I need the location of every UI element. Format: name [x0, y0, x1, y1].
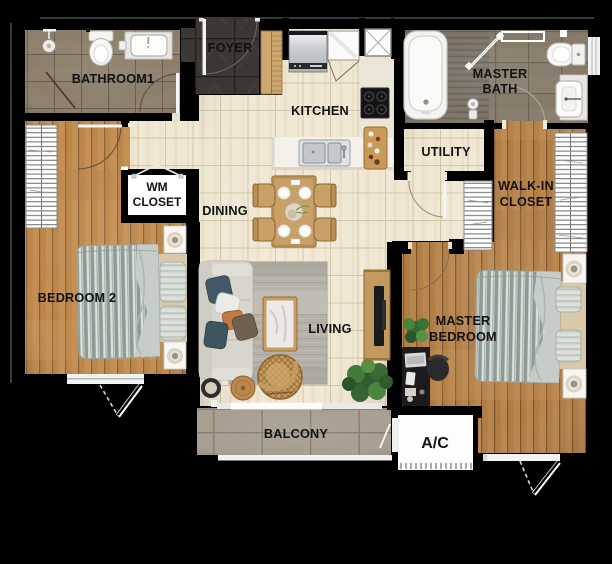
- svg-text:FOYER: FOYER: [208, 41, 253, 55]
- svg-text:BATH: BATH: [482, 82, 517, 96]
- svg-text:A/C: A/C: [421, 435, 449, 452]
- svg-text:DINING: DINING: [202, 204, 248, 218]
- svg-text:BALCONY: BALCONY: [264, 427, 328, 441]
- svg-text:MASTER: MASTER: [473, 67, 528, 81]
- svg-text:BATHROOM1: BATHROOM1: [72, 72, 155, 86]
- svg-text:WM: WM: [146, 180, 167, 194]
- svg-text:WALK-IN: WALK-IN: [498, 179, 554, 193]
- svg-text:LIVING: LIVING: [308, 322, 352, 336]
- svg-text:BEDROOM: BEDROOM: [429, 330, 497, 344]
- svg-text:CLOSET: CLOSET: [500, 195, 553, 209]
- svg-text:MASTER: MASTER: [436, 314, 491, 328]
- svg-text:BEDROOM 2: BEDROOM 2: [38, 291, 117, 305]
- svg-text:CLOSET: CLOSET: [133, 195, 182, 209]
- svg-text:UTILITY: UTILITY: [421, 145, 471, 159]
- svg-text:KITCHEN: KITCHEN: [291, 104, 349, 118]
